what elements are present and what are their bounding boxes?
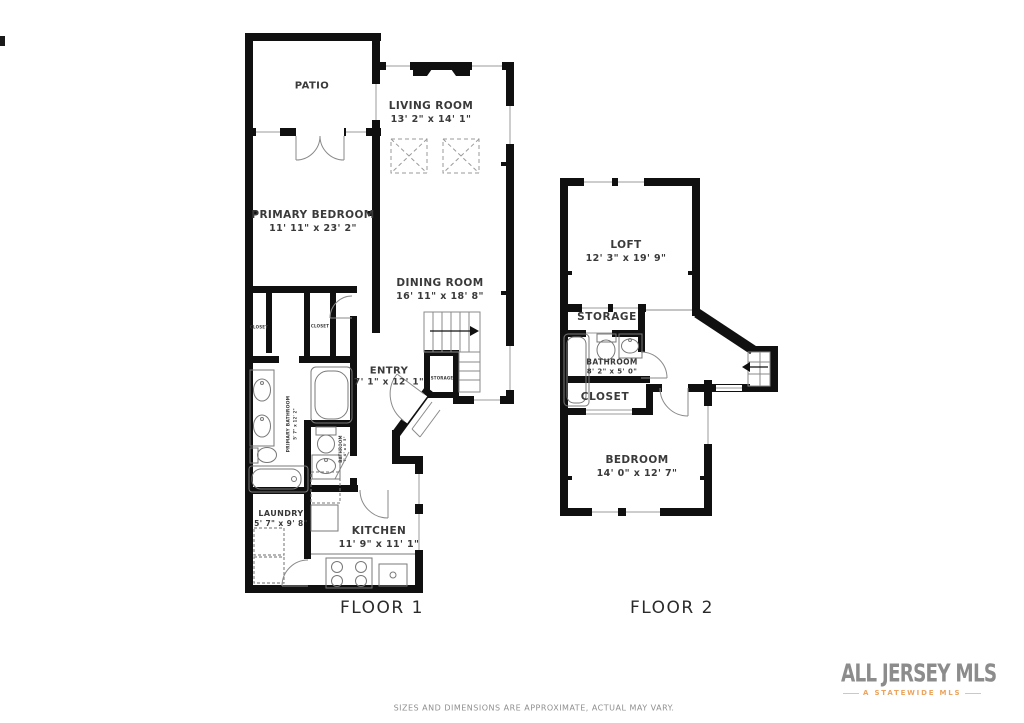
floor2-title: FLOOR 2: [630, 598, 714, 618]
room-name: DINING ROOM: [396, 277, 484, 291]
room-name: STORAGE: [431, 375, 454, 380]
room-label-closet-left: CLOSET: [250, 324, 268, 329]
logo-tagline-row: A STATEWIDE MLS: [843, 689, 981, 697]
room-label-loft: LOFT 12' 3" x 19' 9": [586, 239, 667, 265]
room-dims: 8' 2" x 5' 0": [586, 367, 638, 376]
logo-tagline: A STATEWIDE MLS: [863, 689, 961, 697]
room-name: ENTRY: [354, 365, 424, 378]
room-name: CLOSET: [311, 323, 329, 328]
room-name: STORAGE: [577, 311, 637, 325]
logo-title: ALL JERSEY MLS: [841, 662, 996, 687]
tagline-dash-right: [965, 693, 981, 694]
room-label-patio: PATIO: [295, 80, 329, 93]
logo-text: ALL JERSEY MLS A STATEWIDE MLS: [841, 663, 1024, 697]
sink-icon: [379, 564, 407, 586]
room-label-primary-bedroom: PRIMARY BEDROOM 11' 11" x 23' 2": [251, 209, 374, 235]
disclaimer-text: SIZES AND DIMENSIONS ARE APPROXIMATE, AC…: [394, 704, 675, 713]
all-jersey-mls-logo: ALL JERSEY MLS A STATEWIDE MLS: [836, 650, 1018, 710]
room-label-laundry: LAUNDRY 5' 7" x 9' 8": [254, 509, 308, 529]
fireplace-notch: [432, 70, 450, 76]
room-dims: 5' 7" x 12' 2": [292, 396, 297, 453]
room-label-bathroom-f1: BATHROOM 7' 4" x 5' 5": [338, 435, 348, 462]
room-label-closet-f2: CLOSET: [581, 391, 629, 405]
room-dims: 14' 0" x 12' 7": [597, 468, 678, 480]
room-name: BATHROOM: [586, 358, 638, 368]
room-dims: 16' 11" x 18' 8": [396, 291, 484, 303]
room-label-bathroom-f2: BATHROOM 8' 2" x 5' 0": [586, 358, 638, 377]
room-label-bedroom: BEDROOM 14' 0" x 12' 7": [597, 454, 678, 480]
room-label-kitchen: KITCHEN 11' 9" x 11' 1": [339, 525, 420, 551]
room-name: LOFT: [586, 239, 667, 253]
room-dims: 7' 1" x 12' 1": [354, 378, 424, 390]
room-dims: 11' 11" x 23' 2": [251, 223, 374, 235]
room-name: LIVING ROOM: [389, 100, 473, 114]
room-dims: 11' 9" x 11' 1": [339, 539, 420, 551]
room-label-entry: ENTRY 7' 1" x 12' 1": [354, 365, 424, 390]
room-label-living-room: LIVING ROOM 13' 2" x 14' 1": [389, 100, 473, 126]
room-name: PRIMARY BATHROOM: [286, 396, 292, 453]
room-name: BEDROOM: [597, 454, 678, 468]
bathroom-fixtures: [312, 427, 340, 479]
room-dims: 13' 2" x 14' 1": [389, 114, 473, 126]
skylight-icons: [391, 139, 479, 173]
room-dims: 12' 3" x 19' 9": [586, 253, 667, 265]
room-name: CLOSET: [581, 391, 629, 405]
soaking-tub-icon: [311, 367, 352, 423]
room-dims: 5' 7" x 9' 8": [254, 519, 308, 529]
edge-artifact: [0, 36, 5, 46]
room-label-closet-right: CLOSET: [311, 323, 329, 328]
room-label-storage-f2: STORAGE: [577, 311, 637, 325]
toilet-icon: [316, 427, 336, 435]
room-dims: 7' 4" x 5' 5": [343, 435, 348, 462]
room-name: KITCHEN: [339, 525, 420, 539]
room-label-dining-room: DINING ROOM 16' 11" x 18' 8": [396, 277, 484, 303]
closet-sliding-doors: [586, 410, 632, 414]
room-name: LAUNDRY: [254, 509, 308, 519]
room-name: CLOSET: [250, 324, 268, 329]
room-label-storage-f1: STORAGE: [431, 375, 454, 380]
floor-plan-canvas: [0, 0, 1024, 723]
floorplan-screenshot: { "colors": {"wall":"#101010","thin_line…: [0, 0, 1024, 723]
room-name: PRIMARY BEDROOM: [251, 209, 374, 223]
room-label-primary-bathroom: PRIMARY BATHROOM 5' 7" x 12' 2": [286, 396, 297, 453]
stove-icon: [326, 558, 372, 588]
tagline-dash-left: [843, 693, 859, 694]
washer-dryer-icon: [254, 528, 284, 583]
floor1-title: FLOOR 1: [340, 598, 424, 618]
primary-bathroom-fixtures: [249, 367, 352, 492]
room-name: PATIO: [295, 80, 329, 93]
